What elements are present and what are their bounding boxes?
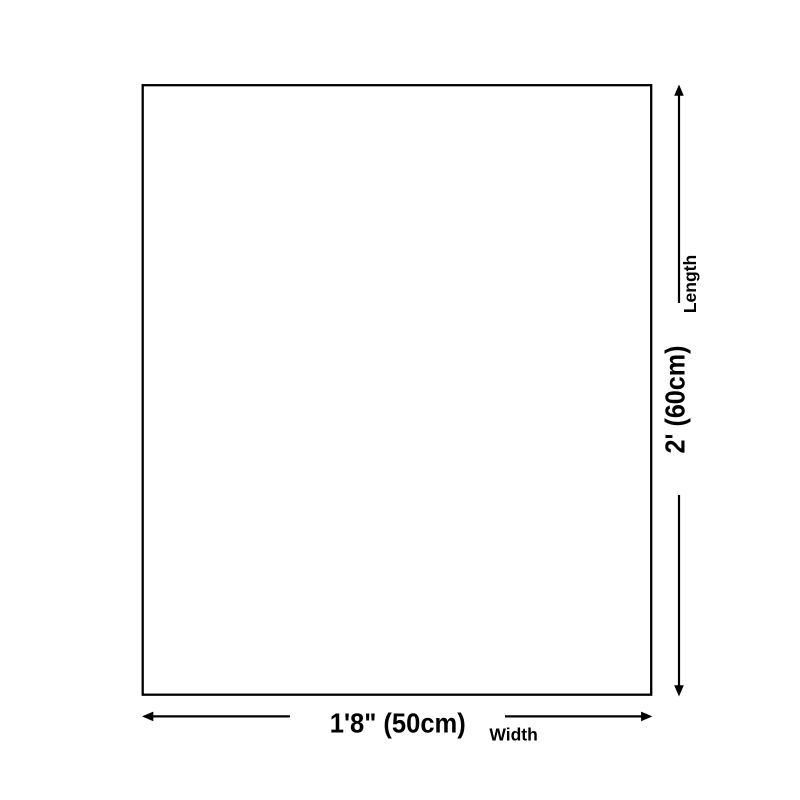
svg-text:Length: Length: [680, 255, 700, 313]
svg-text:2' (60cm): 2' (60cm): [660, 346, 691, 454]
svg-text:Width: Width: [489, 724, 537, 744]
svg-text:1'8" (50cm): 1'8" (50cm): [330, 707, 466, 738]
